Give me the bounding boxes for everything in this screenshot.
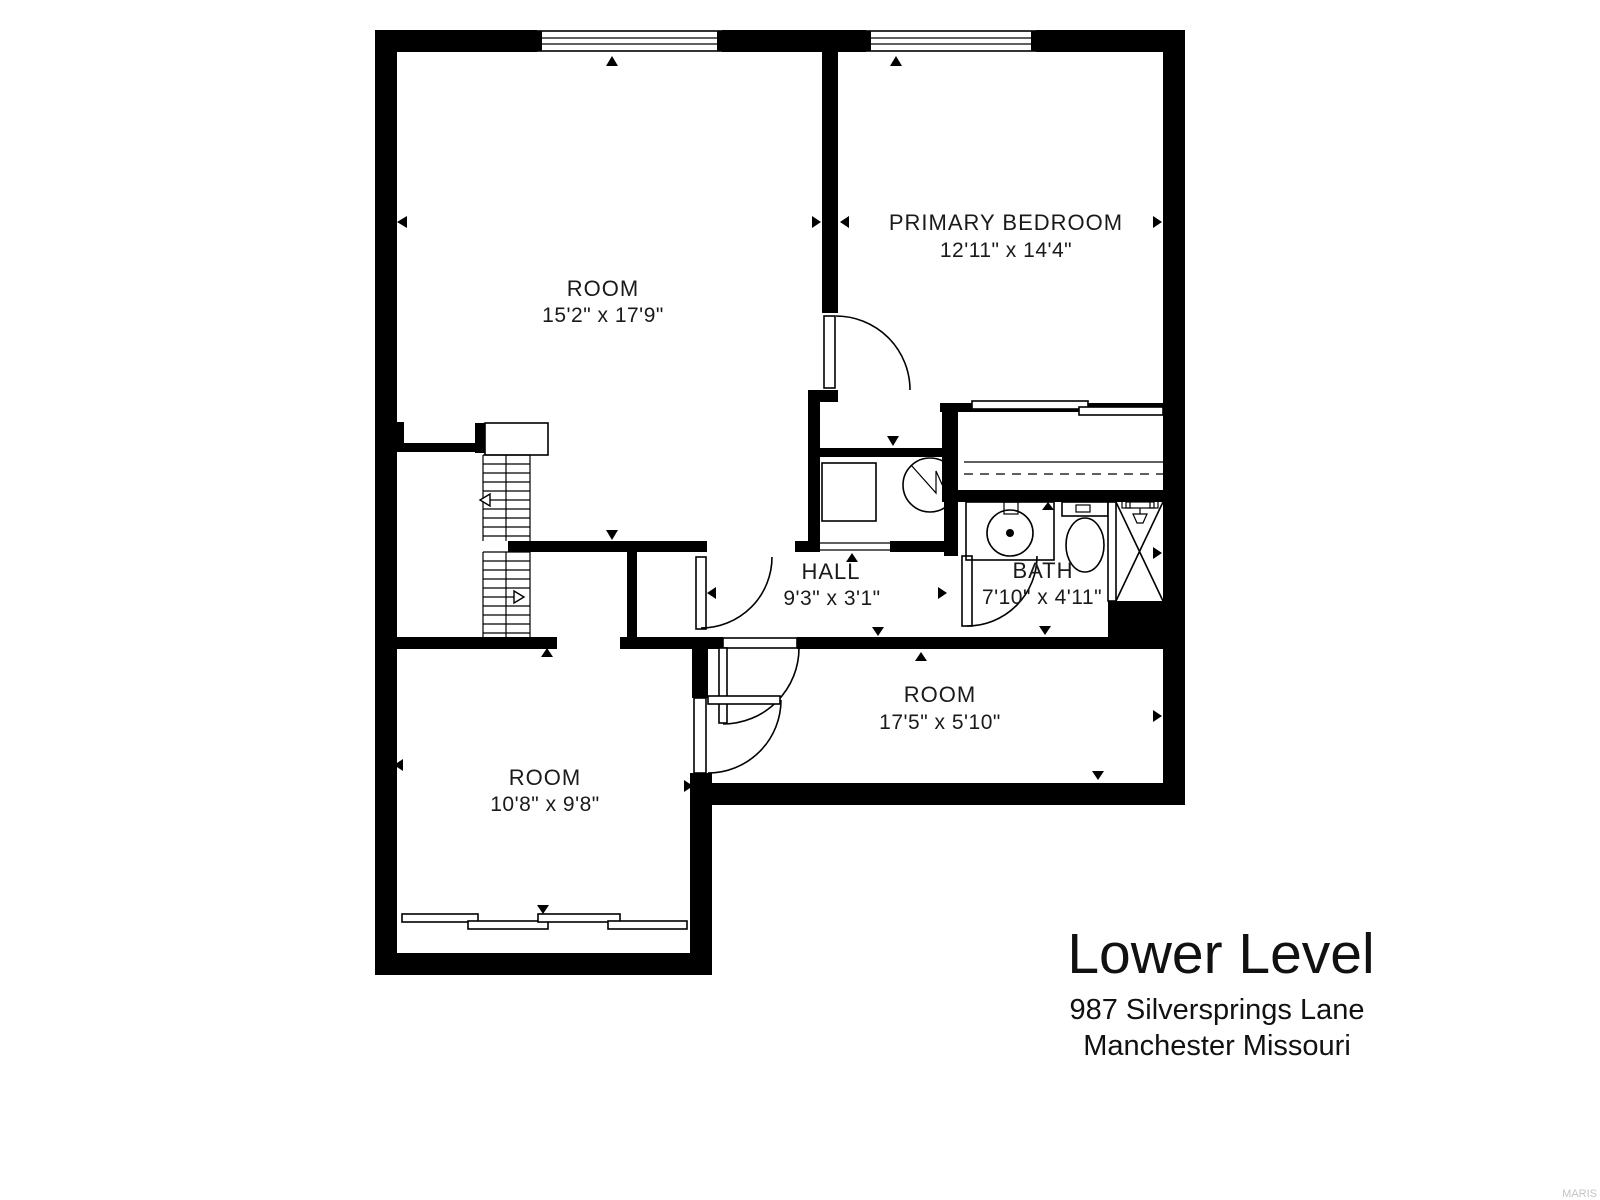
address-line1: 987 Silversprings Lane (1069, 994, 1364, 1026)
closet-track (972, 401, 1088, 409)
room-dims-hall: 9'3" x 3'1" (783, 587, 880, 610)
sink-icon (966, 502, 1054, 560)
stair-down-arrow (514, 591, 524, 603)
room-dims-bath: 7'10" x 4'11" (982, 586, 1102, 609)
room-dims-primary-bedroom: 12'11" x 14'4" (940, 239, 1072, 262)
address-line2: Manchester Missouri (1083, 1030, 1351, 1062)
door-primary-bedroom (824, 316, 910, 390)
maris-watermark: MARIS (1562, 1188, 1597, 1200)
furnace-icon (822, 463, 876, 521)
room-label-main: ROOM (567, 276, 639, 301)
window (866, 31, 1036, 51)
closet-track (1079, 407, 1163, 415)
room-label-bath: BATH (1012, 558, 1073, 583)
stair-up-arrow (480, 494, 490, 506)
room-label-hall: HALL (801, 559, 860, 584)
door-middle-room (719, 638, 799, 724)
page-title: Lower Level (1067, 922, 1374, 986)
stair-landing (485, 423, 548, 455)
room-label-mid: ROOM (904, 682, 976, 707)
room-label-primary-bedroom: PRIMARY BEDROOM (889, 210, 1123, 235)
window (537, 31, 722, 51)
shower-head-icon (1133, 514, 1147, 523)
staircase (480, 423, 548, 637)
floor-plan: ROOM 15'2" x 17'9" PRIMARY BEDROOM 12'11… (0, 0, 1600, 1200)
room-dims-lower: 10'8" x 9'8" (490, 793, 600, 816)
room-dims-mid: 17'5" x 5'10" (879, 711, 1001, 734)
door-lower-room (694, 696, 781, 773)
room-dims-main: 15'2" x 17'9" (542, 304, 664, 327)
cased-opening (820, 543, 890, 550)
room-label-lower: ROOM (509, 765, 581, 790)
sliding-door (402, 914, 687, 929)
